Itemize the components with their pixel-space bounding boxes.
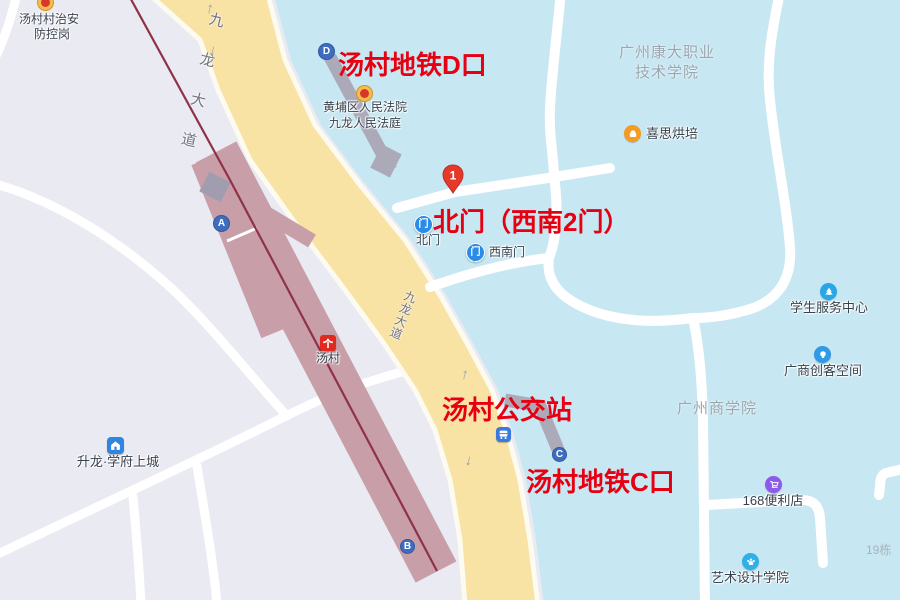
exit-b-letter: B: [404, 542, 411, 552]
map-base-layer: [0, 0, 900, 600]
art-college-pin-icon[interactable]: [742, 553, 759, 570]
shenglong-estate-label: 升龙·学府上城: [77, 455, 159, 470]
metro-station-icon[interactable]: [320, 335, 336, 351]
bakery-label: 喜思烘培: [646, 127, 698, 142]
gate-glyph: 门: [419, 220, 429, 230]
student-service-pin-icon[interactable]: [820, 283, 837, 300]
pin-1-number: 1: [450, 169, 457, 183]
bakery-pin-icon[interactable]: [624, 125, 641, 142]
bus-station-icon[interactable]: [496, 427, 511, 442]
store-168-pin-icon[interactable]: [765, 476, 782, 493]
court-emblem-icon: [356, 85, 373, 102]
southwest-gate-label: 西南门: [489, 246, 525, 260]
court-label-line1: 黄埔区人民法院: [323, 101, 407, 115]
southwest-gate-icon[interactable]: 门: [466, 243, 485, 262]
building-19-label: 19栋: [866, 544, 891, 558]
north-gate-icon[interactable]: 门: [414, 215, 433, 234]
court-label-line2: 九龙人民法庭: [329, 117, 401, 131]
exit-d-letter: D: [323, 47, 330, 57]
commerce-college-label: 广州商学院: [677, 400, 757, 417]
annotation-north-gate: 北门（西南2门）: [433, 202, 629, 239]
metro-exit-b-pin[interactable]: B: [400, 539, 415, 554]
exit-a-letter: A: [218, 219, 225, 229]
shenglong-estate-pin-icon[interactable]: [107, 437, 124, 454]
annotation-exit-d: 汤村地铁D口: [338, 45, 487, 82]
exit-c-letter: C: [556, 450, 563, 460]
security-post-label-line1: 汤村村治安: [19, 13, 79, 27]
destination-pin-1[interactable]: 1: [442, 164, 464, 194]
metro-exit-a-pin[interactable]: A: [213, 215, 230, 232]
kangda-college-label-line1: 广州康大职业: [619, 44, 715, 61]
kangda-college-label-line2: 技术学院: [635, 64, 699, 81]
maker-space-pin-icon[interactable]: [814, 346, 831, 363]
gate-glyph: 门: [471, 248, 481, 258]
security-post-label-line2: 防控岗: [34, 28, 70, 42]
metro-exit-d-pin[interactable]: D: [318, 43, 335, 60]
metro-station-label: 汤村: [316, 352, 340, 366]
map-viewport[interactable]: 九龙大道 九龙大道 ↑ ↓ ↑ ↓ 汤村村治安 防控岗 黄埔区人民法院 九龙人民…: [0, 0, 900, 600]
metro-exit-c-pin[interactable]: C: [552, 447, 567, 462]
annotation-exit-c: 汤村地铁C口: [526, 462, 675, 499]
annotation-bus-station: 汤村公交站: [442, 390, 572, 427]
